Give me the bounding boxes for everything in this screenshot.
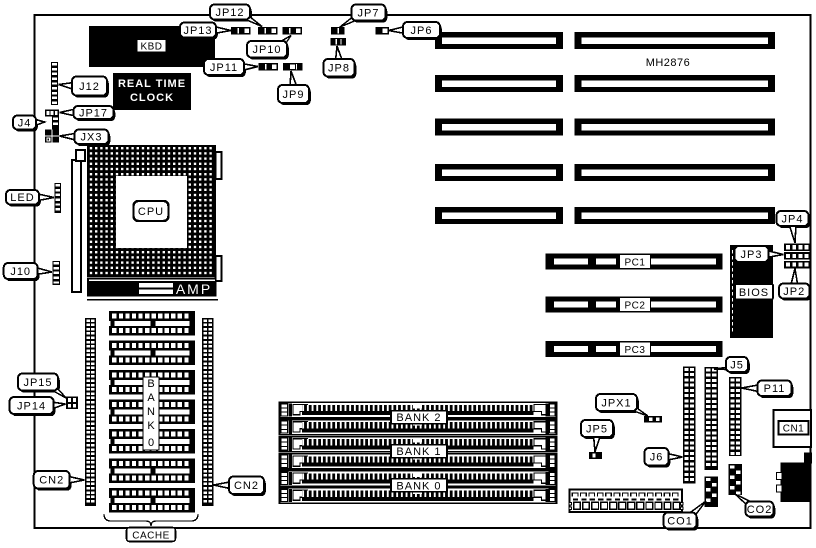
svg-text:J10: J10 — [10, 266, 31, 278]
svg-text:JP9: JP9 — [283, 89, 305, 101]
svg-text:BANK 2: BANK 2 — [396, 412, 441, 424]
svg-text:J12: J12 — [79, 81, 100, 93]
svg-text:J5: J5 — [730, 360, 744, 372]
svg-text:JPX1: JPX1 — [601, 398, 631, 410]
svg-text:B: B — [147, 378, 154, 390]
svg-text:KBD: KBD — [140, 42, 162, 53]
svg-text:JX3: JX3 — [81, 132, 103, 144]
svg-text:BANK 0: BANK 0 — [396, 480, 441, 492]
svg-text:JP4: JP4 — [782, 214, 804, 226]
svg-text:N: N — [147, 406, 155, 418]
svg-text:JP7: JP7 — [358, 8, 380, 20]
svg-text:JP14: JP14 — [17, 401, 46, 413]
svg-text:P11: P11 — [764, 383, 786, 395]
svg-text:CPU: CPU — [138, 206, 164, 218]
svg-text:J4: J4 — [18, 118, 32, 130]
svg-text:JP10: JP10 — [252, 44, 281, 56]
svg-text:CACHE: CACHE — [132, 531, 170, 542]
svg-text:JP3: JP3 — [741, 249, 763, 261]
svg-text:PC3: PC3 — [625, 345, 646, 356]
svg-text:CLOCK: CLOCK — [130, 92, 174, 104]
svg-text:PC1: PC1 — [625, 258, 646, 269]
svg-text:JP8: JP8 — [328, 63, 350, 75]
svg-text:BIOS: BIOS — [739, 287, 769, 299]
svg-text:BANK 1: BANK 1 — [396, 446, 441, 458]
svg-text:JP5: JP5 — [586, 424, 608, 436]
svg-text:CN1: CN1 — [783, 424, 805, 435]
svg-text:LED: LED — [10, 192, 34, 204]
svg-text:J6: J6 — [650, 452, 664, 464]
svg-text:JP11: JP11 — [210, 62, 238, 74]
svg-text:CO2: CO2 — [747, 504, 773, 516]
svg-text:REAL TIME: REAL TIME — [118, 78, 186, 90]
svg-text:AMP: AMP — [176, 281, 212, 297]
svg-text:CN2: CN2 — [234, 480, 259, 492]
svg-text:JP2: JP2 — [783, 286, 805, 298]
svg-text:JP13: JP13 — [183, 25, 212, 37]
svg-text:JP17: JP17 — [79, 108, 108, 120]
svg-text:JP12: JP12 — [215, 7, 244, 19]
svg-text:JP15: JP15 — [23, 377, 52, 389]
svg-text:CO1: CO1 — [667, 516, 693, 528]
svg-text:CN2: CN2 — [39, 475, 64, 487]
svg-text:JP6: JP6 — [411, 25, 433, 37]
svg-text:0: 0 — [148, 437, 154, 449]
svg-text:MH2876: MH2876 — [646, 57, 691, 69]
svg-text:A: A — [147, 392, 155, 404]
svg-text:K: K — [147, 420, 155, 432]
svg-text:PC2: PC2 — [625, 301, 646, 312]
